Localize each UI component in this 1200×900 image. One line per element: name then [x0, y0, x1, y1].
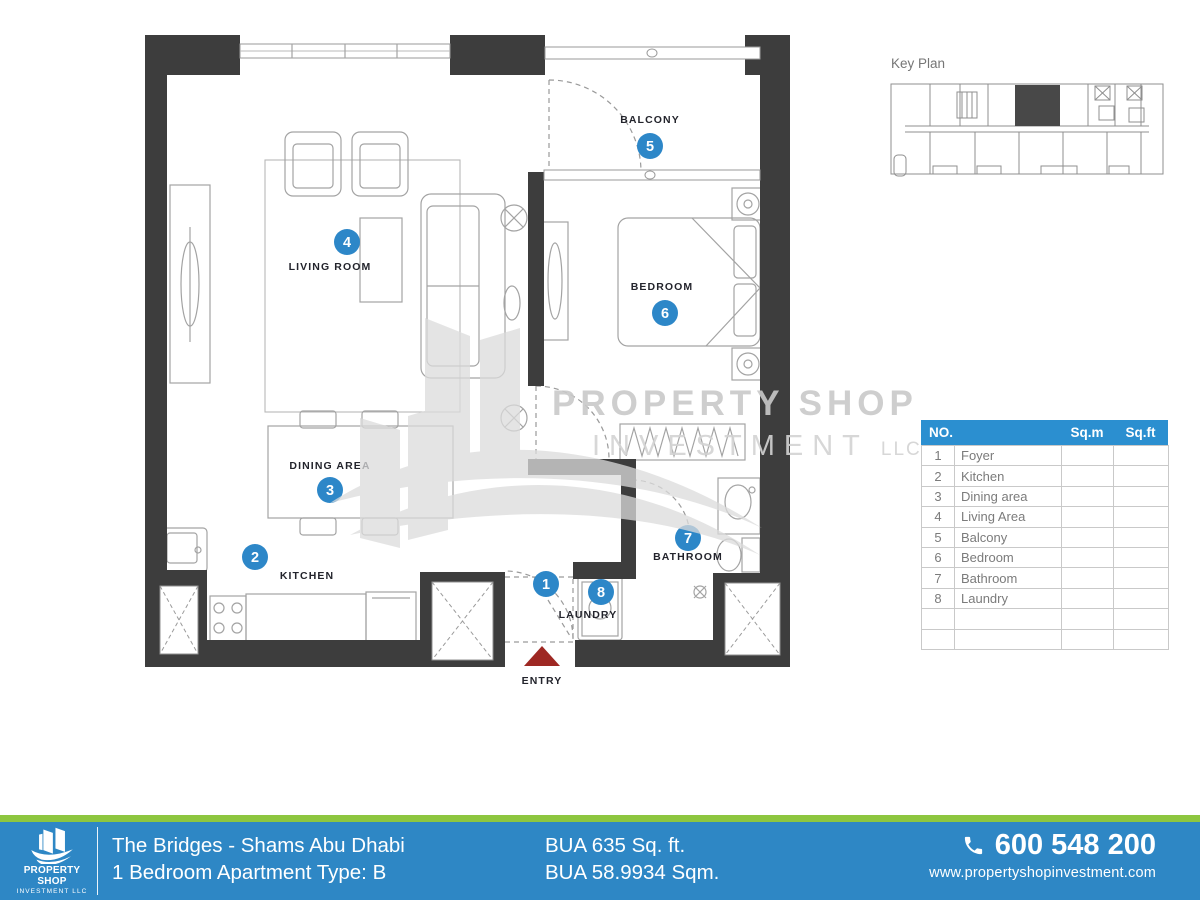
project-title-block: The Bridges - Shams Abu Dhabi 1 Bedroom …: [112, 832, 405, 886]
psi-logo: PROPERTY SHOP INVESTMENT LLC: [8, 826, 96, 895]
fridge: [366, 592, 416, 642]
room-label-living: LIVING ROOM: [289, 261, 372, 273]
table-row: 3 Dining area: [922, 486, 1169, 506]
key-plan-unit-highlight: [1015, 85, 1060, 126]
table-row: 1 Foyer: [922, 446, 1169, 466]
bathroom-sink: [718, 478, 760, 534]
phone-row: 600 548 200: [929, 829, 1156, 862]
table-row: [922, 629, 1169, 649]
key-plan: Key Plan: [885, 52, 1177, 200]
room-marker-2: 2: [251, 550, 259, 566]
table-row: 4 Living Area: [922, 507, 1169, 527]
table-row: 7 Bathroom: [922, 568, 1169, 588]
col-no: NO.: [929, 420, 953, 445]
footer: PROPERTY SHOP INVESTMENT LLC The Bridges…: [0, 815, 1200, 900]
room-label-bedroom: BEDROOM: [631, 281, 694, 293]
counter: [246, 594, 366, 642]
unit-type: 1 Bedroom Apartment Type: B: [112, 859, 405, 886]
entry-label: ENTRY: [522, 675, 563, 687]
website: www.propertyshopinvestment.com: [929, 865, 1156, 881]
table-row: 2 Kitchen: [922, 466, 1169, 486]
bedroom-furniture: [542, 188, 764, 460]
walls: [145, 35, 790, 667]
room-label-laundry: LAUNDRY: [559, 609, 618, 621]
room-label-bathroom: BATHROOM: [653, 551, 723, 563]
room-marker-3: 3: [326, 483, 334, 499]
room-label-kitchen: KITCHEN: [280, 570, 334, 582]
footer-accent-stripe: [0, 815, 1200, 822]
dining-furniture: [268, 411, 453, 535]
contact-block: 600 548 200 www.propertyshopinvestment.c…: [929, 829, 1156, 881]
footer-divider: [97, 827, 98, 895]
room-marker-5: 5: [646, 139, 654, 155]
entry-arrow-icon: [524, 646, 560, 666]
bua-sqft: BUA 635 Sq. ft.: [545, 832, 719, 859]
col-sqm: Sq.m: [1061, 420, 1113, 445]
psi-logo-text: PROPERTY SHOP: [8, 865, 96, 887]
phone-icon: [962, 834, 985, 857]
psi-logo-subtext: INVESTMENT LLC: [8, 888, 96, 895]
table-row: 5 Balcony: [922, 527, 1169, 547]
bua-block: BUA 635 Sq. ft. BUA 58.9934 Sqm.: [545, 832, 719, 886]
bua-sqm: BUA 58.9934 Sqm.: [545, 859, 719, 886]
room-marker-6: 6: [661, 306, 669, 322]
room-marker-1: 1: [542, 577, 550, 593]
room-label-balcony: BALCONY: [620, 114, 680, 126]
table-row: [922, 609, 1169, 629]
footer-bar: PROPERTY SHOP INVESTMENT LLC The Bridges…: [0, 822, 1200, 900]
area-table: NO. Sq.m Sq.ft 1 Foyer 2 Kitchen: [921, 420, 1168, 650]
room-label-dining: DINING AREA: [289, 460, 370, 472]
dining-table: [268, 426, 453, 518]
project-title: The Bridges - Shams Abu Dhabi: [112, 832, 405, 859]
psi-logo-icon: [25, 826, 79, 864]
living-room-furniture: [170, 132, 527, 431]
key-plan-title: Key Plan: [891, 56, 945, 71]
col-sqft: Sq.ft: [1113, 420, 1168, 445]
kitchen-sink: [162, 528, 207, 572]
dresser: [542, 222, 568, 340]
stove: [210, 596, 246, 642]
table-row: 8 Laundry: [922, 588, 1169, 608]
floor-plan: LIVING ROOM DINING AREA KITCHEN BALCONY …: [140, 22, 805, 702]
toilet: [742, 538, 760, 572]
area-table-header: NO. Sq.m Sq.ft: [921, 420, 1168, 445]
room-marker-4: 4: [343, 235, 351, 251]
phone-number: 600 548 200: [995, 829, 1156, 862]
room-marker-7: 7: [684, 531, 692, 547]
table-row: 6 Bedroom: [922, 547, 1169, 567]
room-marker-8: 8: [597, 585, 605, 601]
coffee-table: [360, 218, 402, 302]
